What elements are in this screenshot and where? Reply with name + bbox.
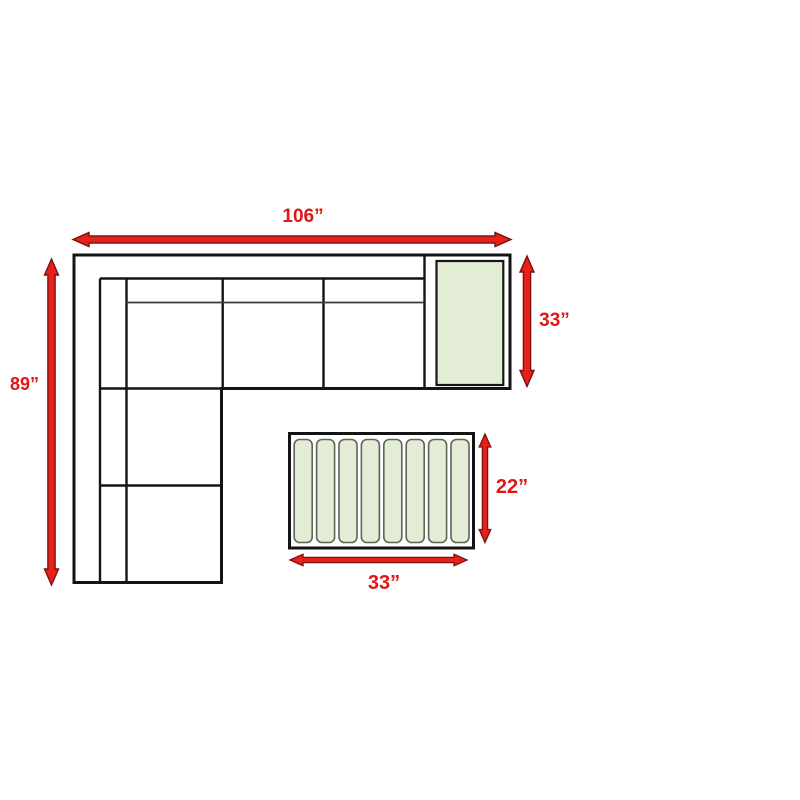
coffee-table-slat xyxy=(384,440,402,543)
corner-end-table-top xyxy=(437,261,504,385)
coffee-table-slat xyxy=(317,440,335,543)
sofa-depth-arrow xyxy=(45,259,59,585)
coffee-table-depth-label: 22” xyxy=(487,477,537,497)
floorplan-canvas xyxy=(0,0,800,800)
coffee-table-slat xyxy=(406,440,424,543)
floorplan-diagram: 106” 89” 33” 22” 33” xyxy=(0,0,800,800)
coffee-table-slat xyxy=(294,440,312,543)
coffee-table-slats xyxy=(294,440,469,543)
sofa-width-label: 106” xyxy=(272,207,334,226)
end-table-depth-label: 33” xyxy=(529,311,580,330)
sofa-width-arrow xyxy=(73,233,511,247)
coffee-table-width-label: 33” xyxy=(359,573,409,593)
coffee-table-width-arrow xyxy=(290,554,467,566)
coffee-table-slat xyxy=(339,440,357,543)
sofa-depth-label: 89” xyxy=(0,375,49,393)
coffee-table-slat xyxy=(429,440,447,543)
coffee-table-slat xyxy=(451,440,469,543)
coffee-table-slat xyxy=(361,440,379,543)
